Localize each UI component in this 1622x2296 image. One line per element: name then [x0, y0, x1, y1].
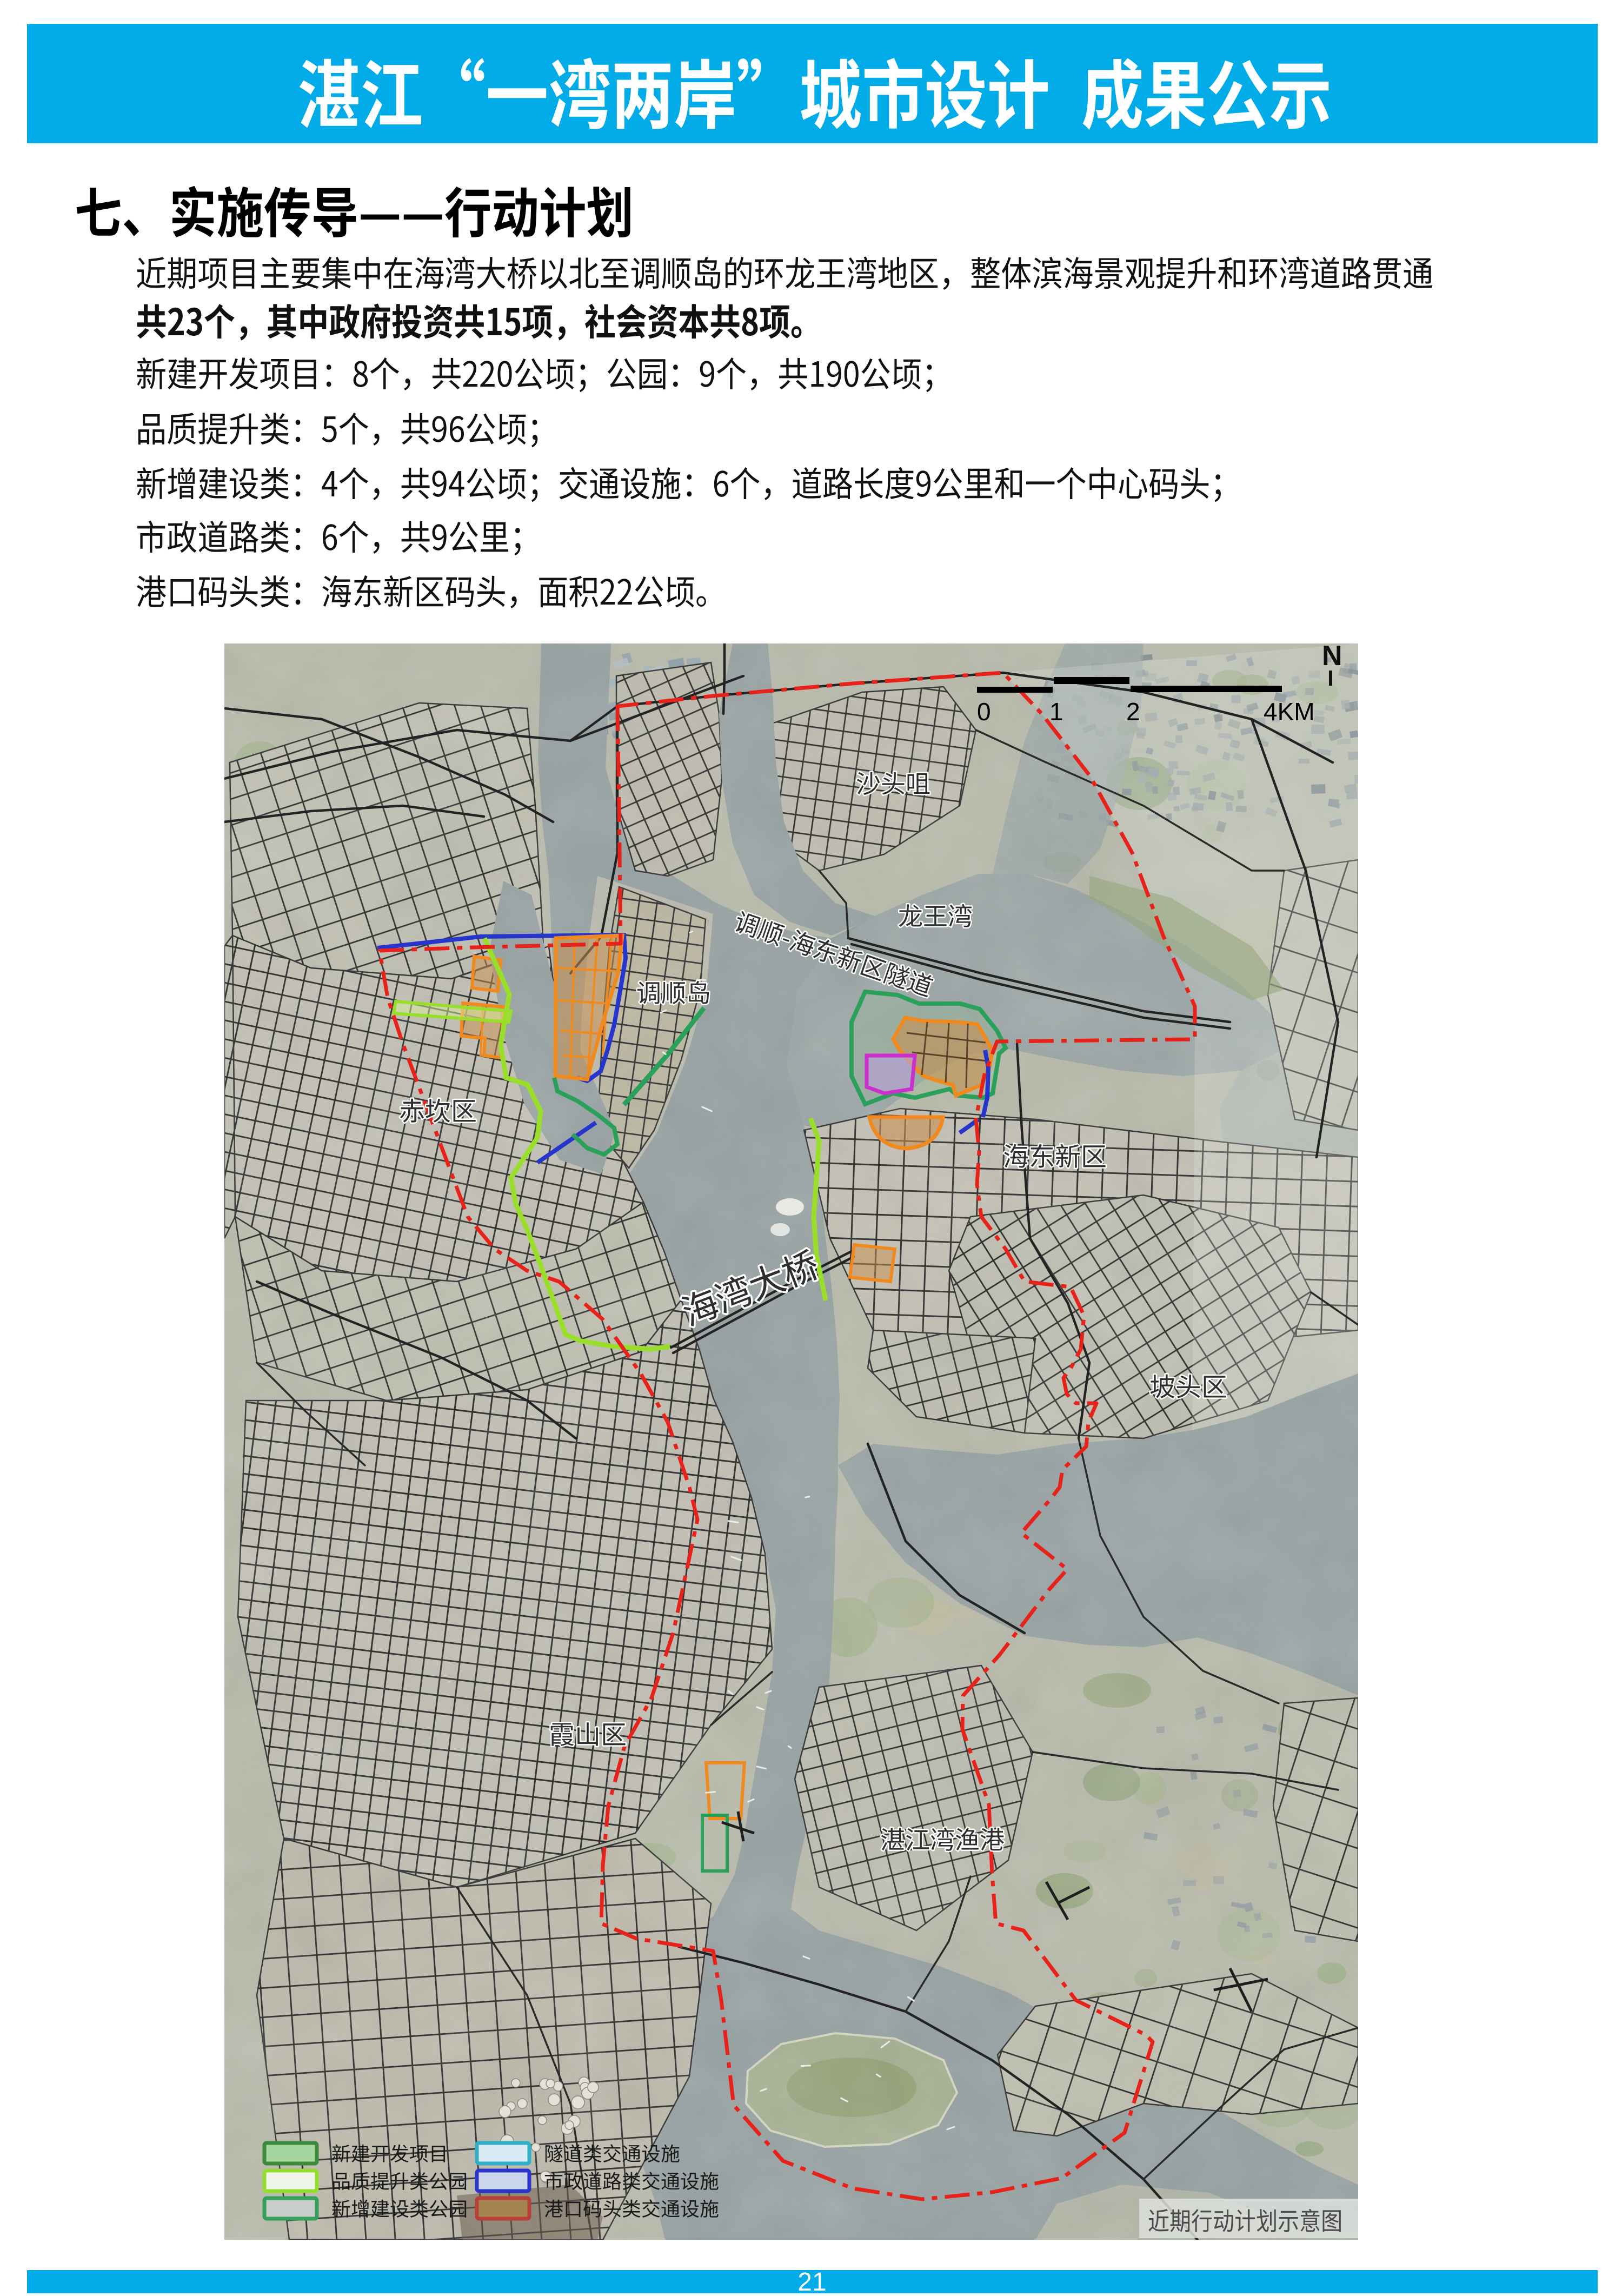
svg-text:2: 2 — [1126, 698, 1140, 726]
svg-text:N: N — [1322, 640, 1342, 672]
svg-text:1: 1 — [1049, 698, 1063, 726]
svg-text:4KM: 4KM — [1264, 698, 1315, 726]
svg-text:21: 21 — [797, 2268, 826, 2293]
svg-text:0: 0 — [977, 698, 991, 726]
